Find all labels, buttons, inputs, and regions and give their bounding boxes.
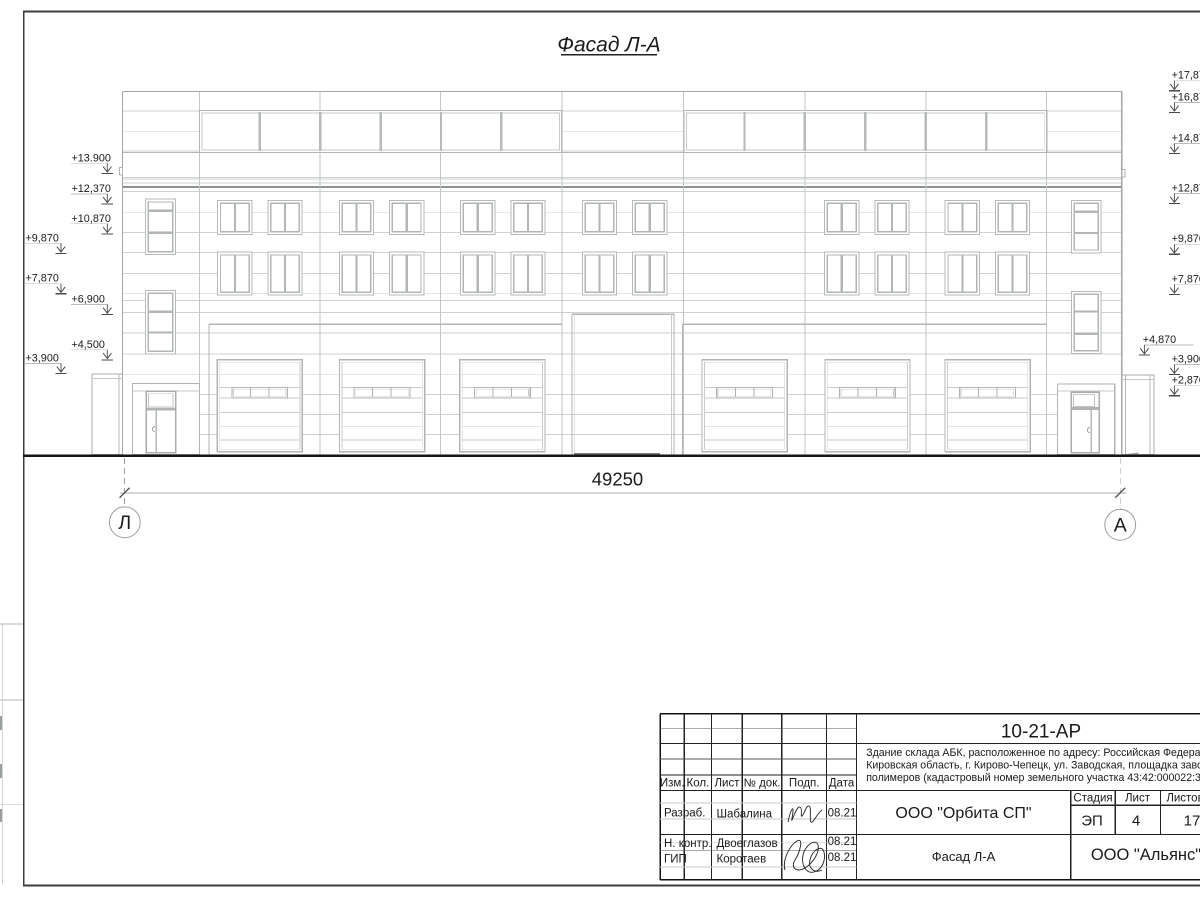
svg-text:+16,870: +16,870 [1172, 91, 1200, 103]
svg-text:Двоеглазов: Двоеглазов [717, 838, 778, 850]
svg-text:+12,370: +12,370 [72, 183, 111, 195]
svg-text:ООО "Альянс": ООО "Альянс" [1091, 846, 1200, 864]
svg-text:+14,870: +14,870 [1172, 133, 1200, 145]
svg-text:Коротаев: Коротаев [717, 854, 767, 866]
svg-text:+9,870: +9,870 [1172, 233, 1200, 245]
svg-text:+4,870: +4,870 [1143, 334, 1176, 346]
svg-text:Кировская область, г. Кирово-Ч: Кировская область, г. Кирово-Чепецк, ул.… [866, 760, 1200, 772]
svg-text:+7,870: +7,870 [1172, 273, 1200, 285]
svg-text:Изм.: Изм. [660, 778, 685, 790]
svg-text:Лист: Лист [715, 778, 741, 790]
svg-text:10-21-АР: 10-21-АР [1001, 722, 1081, 743]
svg-text:ЭП: ЭП [1081, 813, 1103, 830]
svg-text:Здание склада АБК, расположенн: Здание склада АБК, расположенное по адре… [866, 747, 1200, 759]
svg-text:Подп.: Подп. [789, 778, 820, 790]
svg-text:полимеров (кадастровый номер з: полимеров (кадастровый номер земельного … [866, 772, 1200, 784]
svg-text:Листов: Листов [1166, 793, 1200, 805]
svg-text:17: 17 [1184, 813, 1200, 830]
svg-text:+10,870: +10,870 [72, 213, 111, 225]
svg-text:ООО "Орбита СП": ООО "Орбита СП" [895, 805, 1031, 822]
svg-text:№ док.: № док. [744, 778, 781, 790]
svg-text:+3,900: +3,900 [1172, 354, 1200, 366]
svg-text:49250: 49250 [592, 469, 643, 490]
svg-text:Лист: Лист [1125, 793, 1151, 805]
svg-text:+13.900: +13.900 [72, 152, 111, 164]
svg-text:Кол.: Кол. [687, 778, 710, 790]
svg-text:+6,900: +6,900 [72, 294, 105, 306]
svg-text:08.21: 08.21 [828, 808, 857, 820]
svg-text:08.21: 08.21 [828, 852, 857, 864]
svg-text:+2,870: +2,870 [1172, 375, 1200, 387]
svg-text:Разраб.: Разраб. [664, 808, 705, 820]
svg-text:+4,500: +4,500 [72, 339, 105, 351]
svg-text:ГИП: ГИП [664, 854, 687, 866]
svg-text:Стадия: Стадия [1073, 793, 1112, 805]
svg-text:Фасад Л-А: Фасад Л-А [932, 849, 996, 864]
svg-text:Шабалина: Шабалина [717, 809, 773, 821]
svg-text:+7,870: +7,870 [26, 273, 59, 285]
svg-text:+9,870: +9,870 [26, 232, 59, 244]
svg-text:А: А [1114, 515, 1127, 537]
svg-text:Дата: Дата [829, 778, 855, 790]
svg-text:4: 4 [1132, 813, 1140, 830]
svg-text:Н. контр.: Н. контр. [664, 838, 711, 850]
svg-text:+17,870: +17,870 [1172, 70, 1200, 82]
svg-text:Л: Л [118, 512, 131, 534]
svg-text:+12,870: +12,870 [1172, 183, 1200, 195]
svg-text:08.21: 08.21 [828, 836, 857, 848]
svg-text:+3,900: +3,900 [26, 352, 59, 364]
svg-text:Фасад Л-А: Фасад Л-А [557, 33, 660, 56]
